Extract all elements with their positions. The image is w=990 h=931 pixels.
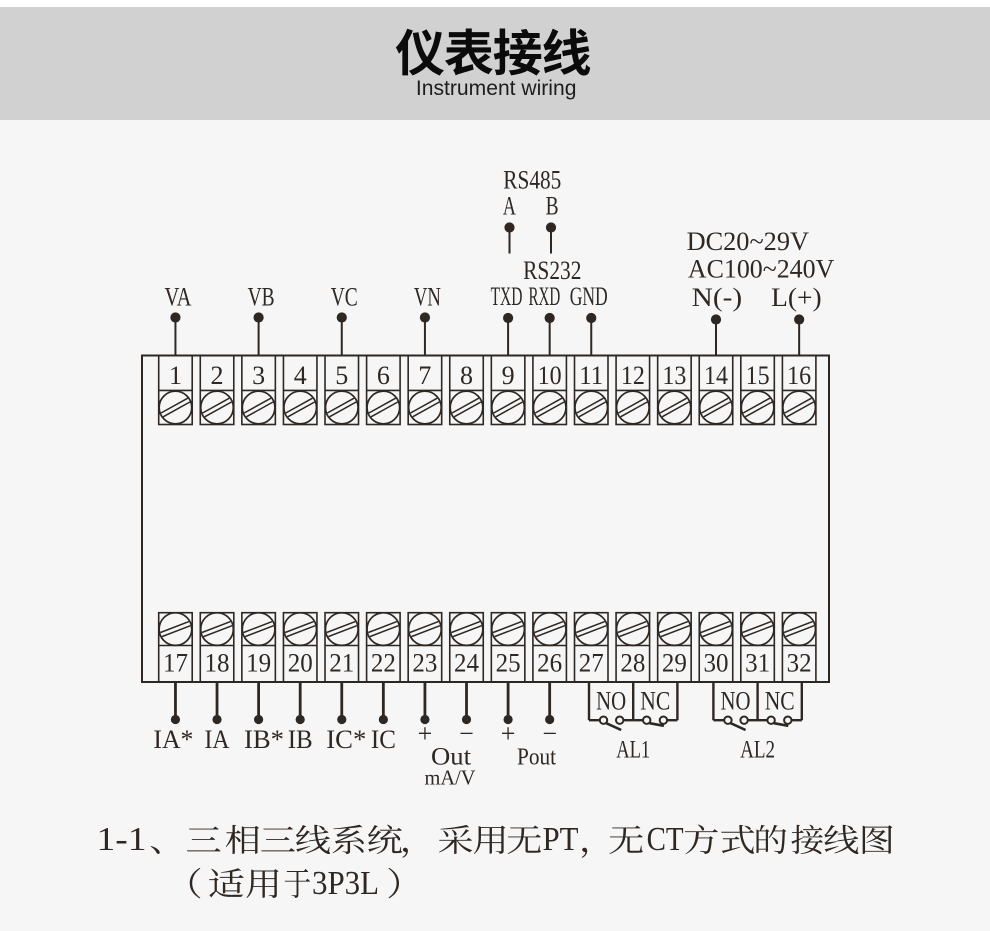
svg-text:AC100~240V: AC100~240V xyxy=(688,255,835,284)
svg-text:RS485: RS485 xyxy=(503,166,561,195)
svg-text:VC: VC xyxy=(331,283,358,312)
svg-text:3P3L: 3P3L xyxy=(312,865,379,902)
svg-text:NC: NC xyxy=(765,687,795,716)
svg-text:N(-): N(-) xyxy=(692,283,743,312)
svg-text:IB*: IB* xyxy=(244,725,284,754)
svg-text:16: 16 xyxy=(787,361,811,390)
svg-text:26: 26 xyxy=(537,649,562,678)
svg-text:PT: PT xyxy=(543,821,579,858)
svg-text:GND: GND xyxy=(570,282,608,311)
svg-text:L(+): L(+) xyxy=(771,283,822,312)
svg-text:17: 17 xyxy=(163,649,188,678)
svg-text:5: 5 xyxy=(335,361,348,390)
svg-text:20: 20 xyxy=(288,649,313,678)
svg-text:RS232: RS232 xyxy=(523,256,581,285)
svg-text:VN: VN xyxy=(414,283,441,312)
svg-text:13: 13 xyxy=(662,361,686,390)
svg-text:24: 24 xyxy=(454,649,479,678)
svg-text:6: 6 xyxy=(377,361,390,390)
svg-text:+: + xyxy=(501,719,516,748)
svg-text:7: 7 xyxy=(418,361,431,390)
svg-text:9: 9 xyxy=(502,361,515,390)
svg-text:30: 30 xyxy=(703,649,728,678)
svg-text:21: 21 xyxy=(329,649,354,678)
svg-text:15: 15 xyxy=(746,361,770,390)
svg-text:NO: NO xyxy=(721,687,751,716)
svg-text:AL2: AL2 xyxy=(740,737,775,764)
svg-text:19: 19 xyxy=(246,649,271,678)
svg-text:28: 28 xyxy=(620,649,645,678)
svg-text:CT: CT xyxy=(647,821,684,858)
svg-text:27: 27 xyxy=(579,649,604,678)
svg-text:22: 22 xyxy=(371,649,396,678)
svg-text:AL1: AL1 xyxy=(616,737,650,764)
svg-text:3: 3 xyxy=(252,361,265,390)
svg-text:A: A xyxy=(503,192,516,221)
svg-text:11: 11 xyxy=(579,361,603,390)
svg-text:12: 12 xyxy=(621,361,645,390)
svg-text:VA: VA xyxy=(164,283,191,312)
svg-text:29: 29 xyxy=(662,649,687,678)
svg-text:31: 31 xyxy=(745,649,770,678)
svg-text:1-1: 1-1 xyxy=(97,821,147,858)
svg-text:23: 23 xyxy=(412,649,437,678)
svg-text:IC*: IC* xyxy=(326,725,366,754)
svg-text:10: 10 xyxy=(538,361,562,390)
svg-text:IA*: IA* xyxy=(153,725,193,754)
svg-text:14: 14 xyxy=(704,361,728,390)
svg-text:1: 1 xyxy=(169,361,182,390)
svg-text:32: 32 xyxy=(787,649,812,678)
svg-text:4: 4 xyxy=(294,361,307,390)
svg-text:Instrument wiring: Instrument wiring xyxy=(416,77,577,100)
svg-text:NO: NO xyxy=(596,687,626,716)
svg-text:TXD: TXD xyxy=(491,282,523,311)
svg-text:DC20~29V: DC20~29V xyxy=(687,227,810,256)
svg-text:B: B xyxy=(546,192,559,221)
svg-text:IA: IA xyxy=(205,725,230,754)
svg-text:8: 8 xyxy=(460,361,473,390)
svg-text:Pout: Pout xyxy=(517,745,556,771)
svg-text:NC: NC xyxy=(640,687,670,716)
svg-text:18: 18 xyxy=(205,649,230,678)
svg-text:RXD: RXD xyxy=(529,282,561,311)
svg-text:25: 25 xyxy=(496,649,521,678)
svg-text:VB: VB xyxy=(248,283,275,312)
svg-text:IC: IC xyxy=(371,725,396,754)
svg-text:IB: IB xyxy=(288,725,313,754)
svg-text:2: 2 xyxy=(211,361,224,390)
svg-text:mA/V: mA/V xyxy=(425,766,476,790)
